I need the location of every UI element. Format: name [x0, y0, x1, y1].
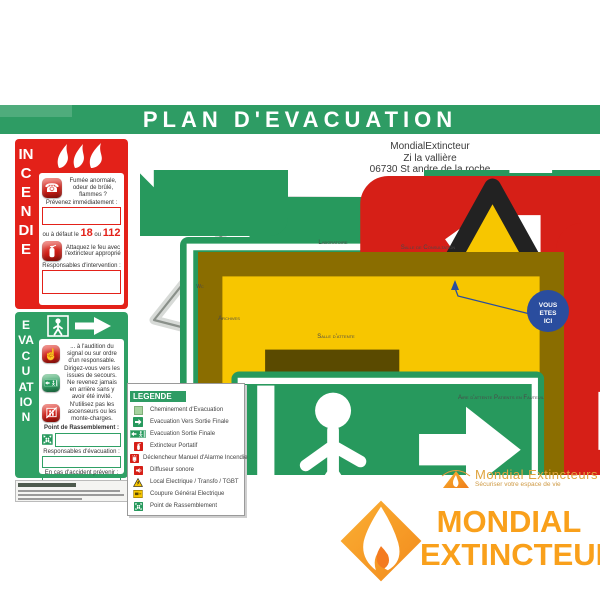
- extinguisher-icon: [130, 442, 146, 451]
- exit-sign-icon: [130, 430, 146, 438]
- warning-triangle-icon: [130, 478, 146, 487]
- intervention-input[interactable]: [42, 270, 121, 294]
- legend-row: Evacuation Vers Sortie Finale: [130, 416, 242, 428]
- notify-label: Prévenez immédiatement :: [42, 200, 121, 207]
- fallback-conj: ou: [94, 232, 101, 238]
- legend-row: Diffuseur sonore: [130, 464, 242, 476]
- header-bar: PLAN D'EVACUATION: [0, 105, 600, 134]
- small-brand-tagline: Sécuriser votre espace de vie: [475, 481, 598, 488]
- legend-label: Cheminement d'Evacuation: [150, 407, 223, 413]
- incendie-step-attack: Attaquez le feu avec l'extincteur approp…: [42, 241, 121, 261]
- legend-label: Evacuation Sortie Finale: [150, 431, 215, 437]
- big-brand-line1: MONDIAL: [420, 505, 598, 538]
- small-brand-text: Mondial Extincteurs Sécuriser votre espa…: [475, 468, 598, 488]
- you-are-here-line1: VOUS: [539, 302, 558, 309]
- evac-signal-text: ... à l'audition du signal ou sur ordre …: [63, 344, 121, 364]
- legend-row: Coupure Général Electrique: [130, 488, 242, 500]
- assembly-label: Point de Rassemblement :: [42, 425, 121, 432]
- room-archives: Archives: [218, 316, 240, 322]
- evac-responsible-label: Responsables d'évacuation :: [42, 449, 121, 456]
- small-brand-logo: Mondial Extincteurs Sécuriser votre espa…: [441, 468, 598, 490]
- intervention-label: Responsables d'intervention :: [42, 263, 121, 270]
- evacuation-panel: EVACUATION ☝ ... à l'audition du signal …: [15, 312, 128, 478]
- incendie-attack-text: Attaquez le feu avec l'extincteur approp…: [65, 245, 121, 259]
- header-shine: [0, 105, 72, 117]
- exit-man-icon: [42, 374, 60, 392]
- legend-row: Déclencheur Manuel d'Alarme Incendie: [130, 452, 242, 464]
- phone-icon: ☎: [42, 178, 62, 198]
- evacuation-vertical-title: EVACUATION: [18, 318, 34, 426]
- evac-step-elevator: N'utilisez pas les ascenseurs ou les mon…: [42, 402, 121, 422]
- room-salle-attente: Salle d'attente: [317, 334, 355, 340]
- site-street: Zi la vallière: [330, 153, 530, 165]
- evac-exits-text: Dirigez-vous vers les issues de secours.…: [63, 366, 121, 400]
- evac-elevator-text: N'utilisez pas les ascenseurs ou les mon…: [63, 402, 121, 422]
- legend-panel: LEGENDE Cheminement d'Evacuation Evacuat…: [127, 383, 245, 516]
- evac-responsible-input[interactable]: [42, 456, 121, 468]
- exit-pictogram-icon: [39, 314, 124, 338]
- extinguisher-glossy-icon: [42, 241, 62, 261]
- fine-print-line: [18, 494, 124, 496]
- path-swatch-icon: [130, 406, 146, 415]
- big-brand-text: MONDIAL EXTINCTEUR: [420, 505, 598, 571]
- no-elevator-icon: [42, 404, 60, 422]
- assembly-point-icon: [130, 502, 146, 511]
- page-title: PLAN D'EVACUATION: [143, 107, 457, 133]
- accident-label: En cas d'accident prévenir :: [42, 470, 121, 477]
- site-name: MondialExtincteur: [330, 141, 530, 153]
- evac-step-signal: ☝ ... à l'audition du signal ou sur ordr…: [42, 344, 121, 364]
- diamond-flame-logo: [338, 498, 424, 584]
- incendie-vertical-title: INCENDIE: [18, 145, 34, 259]
- big-brand-line2: EXTINCTEUR: [420, 538, 598, 571]
- fallback-prefix: ou à défaut le: [42, 232, 78, 238]
- legend-label: Evacuation Vers Sortie Finale: [150, 419, 229, 425]
- you-are-here-line2: ETES: [540, 310, 558, 317]
- room-salle-consultation: Salle de Consultation: [401, 245, 456, 251]
- room-wc: Wc: [196, 284, 204, 290]
- number-112: 112: [103, 227, 121, 239]
- assembly-input[interactable]: [55, 433, 121, 447]
- fine-print-box: [15, 480, 128, 502]
- power-cutoff-icon: [130, 490, 146, 498]
- assembly-row: [42, 433, 121, 447]
- green-arrow-sign-icon: [130, 417, 146, 427]
- legend-row: Cheminement d'Evacuation: [130, 404, 242, 416]
- evac-step-exits: Dirigez-vous vers les issues de secours.…: [42, 366, 121, 400]
- press-button-icon: ☝: [42, 345, 60, 363]
- legend-row: Evacuation Sortie Finale: [130, 428, 242, 440]
- room-laboratoire: Laboratoire: [318, 240, 348, 246]
- legend-label: Diffuseur sonore: [150, 467, 194, 473]
- sounder-icon: [130, 466, 146, 475]
- incendie-alert-text: Fumée anormale, odeur de brûlé, flammes …: [65, 178, 121, 198]
- small-brand-name: Mondial Extincteurs: [475, 468, 598, 481]
- arrow-left-sign-icon: [140, 170, 288, 236]
- you-are-here-line3: ICI: [544, 318, 553, 325]
- exit-sign-icon: [231, 372, 544, 476]
- legend-row: Local Electrique / Transfo / TGBT: [130, 476, 242, 488]
- emergency-numbers: ou à défaut le 18 ou 112: [42, 227, 121, 239]
- legend-title: LEGENDE: [130, 391, 186, 402]
- legend-row: Point de Rassemblement: [130, 500, 242, 512]
- legend-label: Coupure Général Electrique: [150, 491, 224, 497]
- evacuation-plan-poster: PLAN D'EVACUATION MondialExtincteur Zi l…: [0, 0, 600, 600]
- evacuation-instructions: ☝ ... à l'audition du signal ou sur ordr…: [39, 339, 124, 474]
- number-18: 18: [81, 227, 93, 239]
- room-aire-attente: Aire d'attente Patients en Fauteuil: [458, 395, 545, 401]
- legend-label: Extincteur Portatif: [150, 443, 197, 449]
- legend-row: Extincteur Portatif: [130, 440, 242, 452]
- mountain-flame-icon: [441, 468, 471, 490]
- fine-print-line: [18, 498, 82, 500]
- incendie-step-alert: ☎ Fumée anormale, odeur de brûlé, flamme…: [42, 178, 121, 198]
- incendie-panel: INCENDIE ☎ Fumée anormale, odeur de brûl…: [15, 139, 128, 309]
- assembly-point-icon: [42, 433, 53, 446]
- flames-icon: [39, 141, 124, 171]
- legend-label: Point de Rassemblement: [150, 503, 217, 509]
- legend-label: Local Electrique / Transfo / TGBT: [150, 479, 239, 485]
- incendie-instructions: ☎ Fumée anormale, odeur de brûlé, flamme…: [39, 173, 124, 305]
- notify-phone-input[interactable]: [42, 207, 121, 225]
- fine-print-line: [18, 490, 120, 492]
- fine-print-header: [18, 483, 76, 487]
- legend-label: Déclencheur Manuel d'Alarme Incendie: [143, 455, 248, 461]
- manual-alarm-icon: [130, 454, 139, 463]
